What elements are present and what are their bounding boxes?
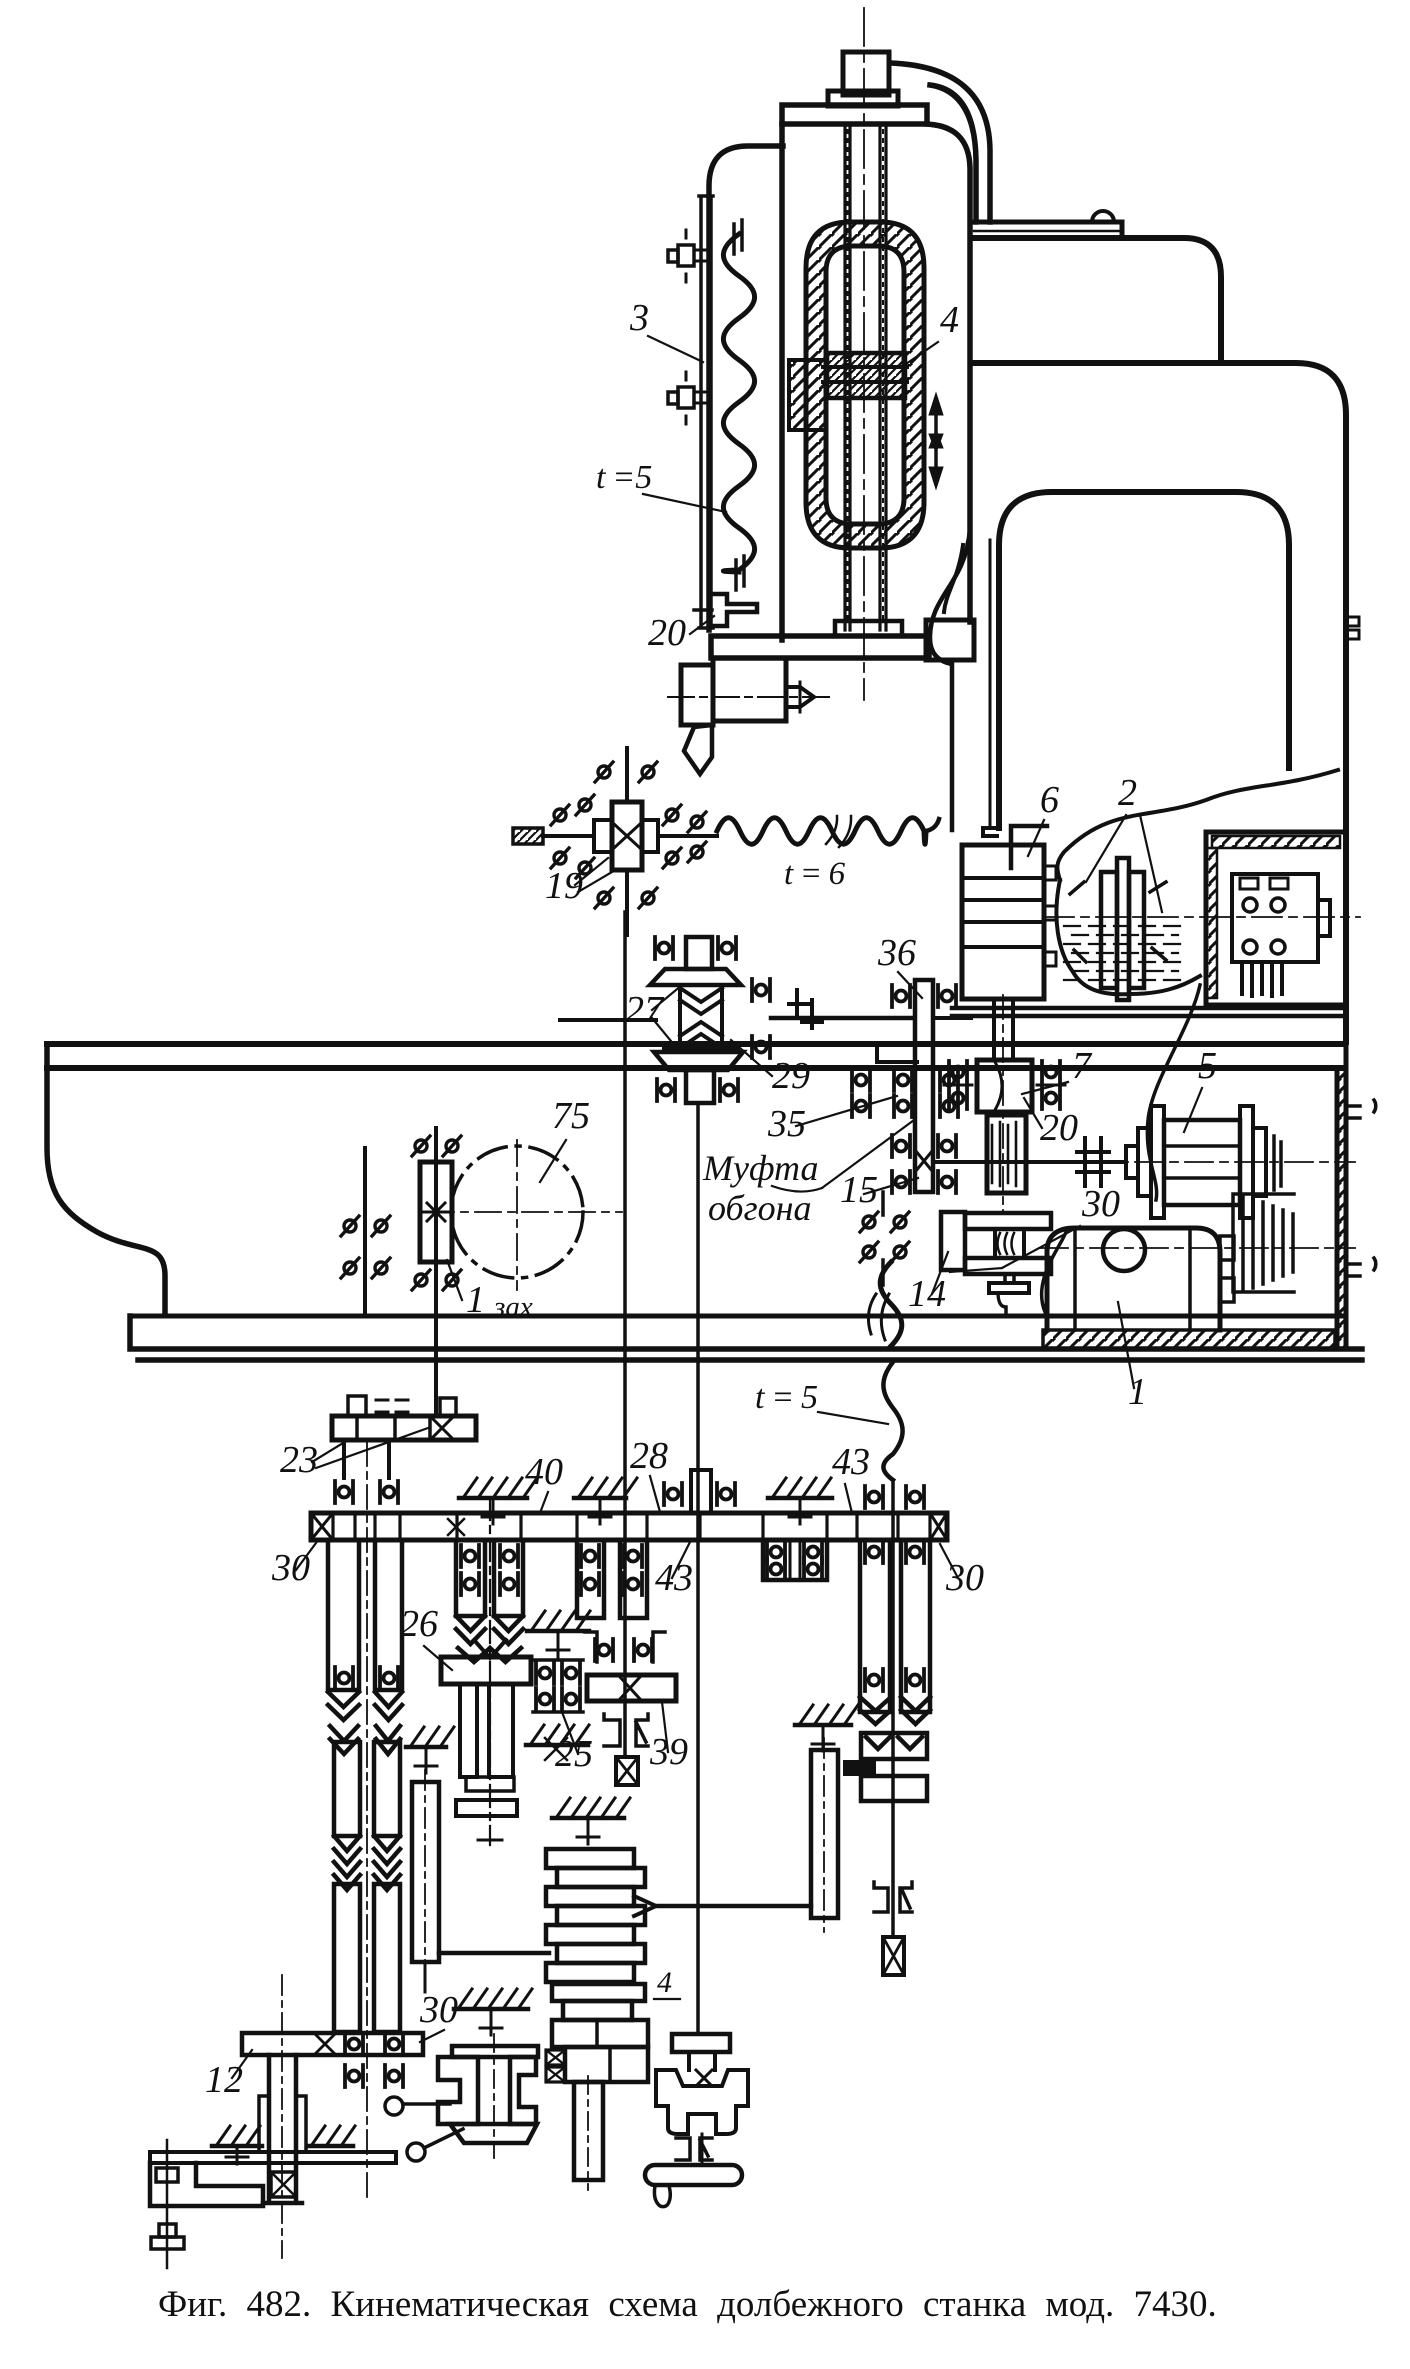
- svg-text:15: 15: [840, 1169, 878, 1211]
- svg-text:5: 5: [1198, 1045, 1217, 1087]
- svg-text:26: 26: [400, 1603, 438, 1645]
- svg-text:30: 30: [1081, 1183, 1120, 1225]
- svg-text:43: 43: [655, 1557, 693, 1599]
- svg-text:25: 25: [555, 1733, 593, 1775]
- svg-text:28: 28: [630, 1435, 668, 1477]
- svg-text:20: 20: [1040, 1107, 1078, 1149]
- svg-text:29: 29: [772, 1055, 810, 1097]
- svg-text:23: 23: [280, 1439, 318, 1481]
- svg-text:20: 20: [648, 612, 686, 654]
- svg-text:30: 30: [419, 1989, 458, 2031]
- svg-text:43: 43: [832, 1441, 870, 1483]
- svg-text:30: 30: [271, 1547, 310, 1589]
- svg-text:t = 6: t = 6: [784, 856, 846, 892]
- svg-text:1: 1: [1128, 1371, 1147, 1413]
- svg-text:1: 1: [466, 1279, 485, 1321]
- svg-text:t =5: t =5: [596, 459, 652, 496]
- svg-text:27: 27: [625, 989, 665, 1031]
- svg-text:4: 4: [657, 1966, 672, 1999]
- svg-text:2: 2: [1118, 772, 1137, 814]
- svg-text:36: 36: [877, 932, 916, 974]
- svg-text:6: 6: [1040, 779, 1059, 821]
- svg-text:Муфта: Муфта: [702, 1148, 819, 1188]
- svg-text:4: 4: [940, 299, 959, 341]
- svg-text:75: 75: [552, 1095, 590, 1137]
- svg-text:зах: зах: [493, 1291, 533, 1323]
- svg-text:3: 3: [629, 297, 649, 339]
- svg-text:40: 40: [525, 1451, 563, 1493]
- svg-text:t = 5: t = 5: [755, 1379, 818, 1416]
- svg-text:14: 14: [908, 1273, 946, 1315]
- svg-text:12: 12: [205, 2059, 243, 2101]
- svg-text:обгона: обгона: [708, 1188, 812, 1228]
- svg-text:19: 19: [545, 865, 583, 907]
- svg-text:Фиг. 482. Кинематическая схема: Фиг. 482. Кинематическая схема долбежног…: [158, 2284, 1217, 2325]
